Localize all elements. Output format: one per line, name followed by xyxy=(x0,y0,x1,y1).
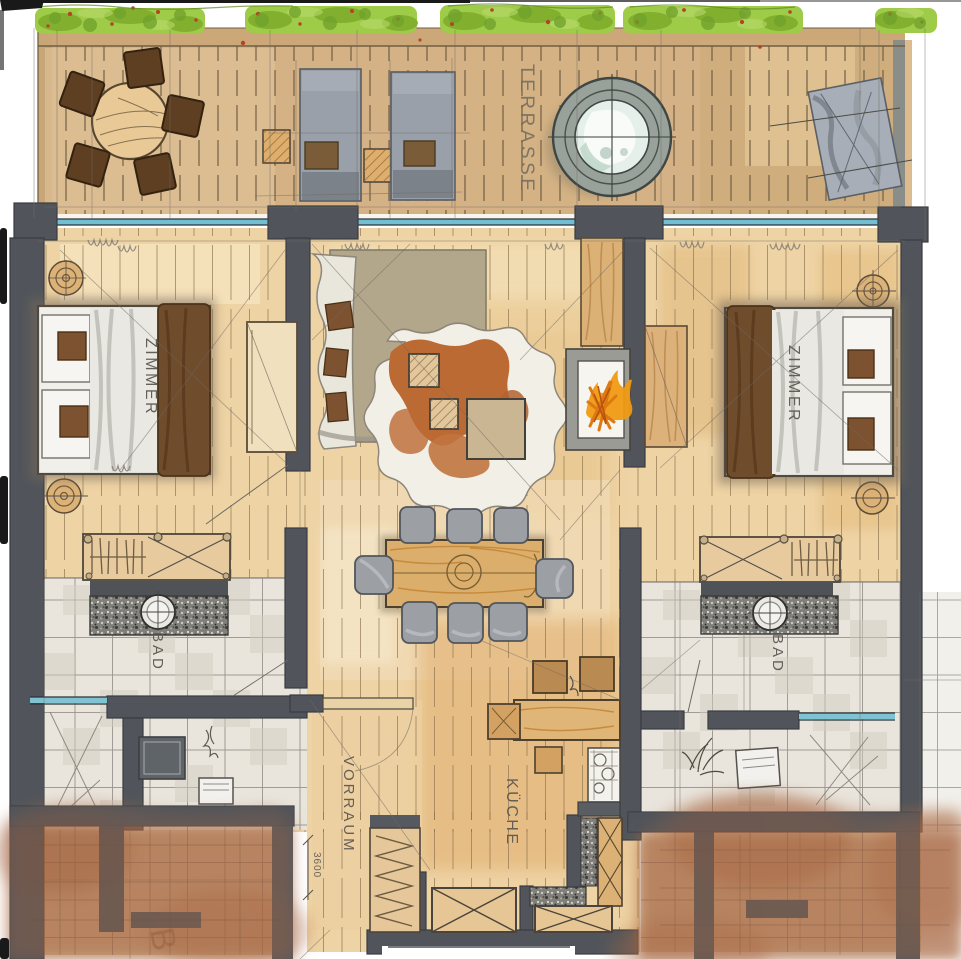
svg-text:KÜCHE: KÜCHE xyxy=(503,778,521,847)
svg-text:BAD: BAD xyxy=(149,632,166,672)
svg-text:ZIMMER: ZIMMER xyxy=(142,338,159,416)
svg-text:3600: 3600 xyxy=(311,852,322,878)
svg-text:ZIMMER: ZIMMER xyxy=(785,345,802,423)
svg-text:VORRAUM: VORRAUM xyxy=(340,756,357,854)
svg-text:TERRASSE: TERRASSE xyxy=(516,64,537,194)
svg-text:BAD: BAD xyxy=(769,634,786,674)
